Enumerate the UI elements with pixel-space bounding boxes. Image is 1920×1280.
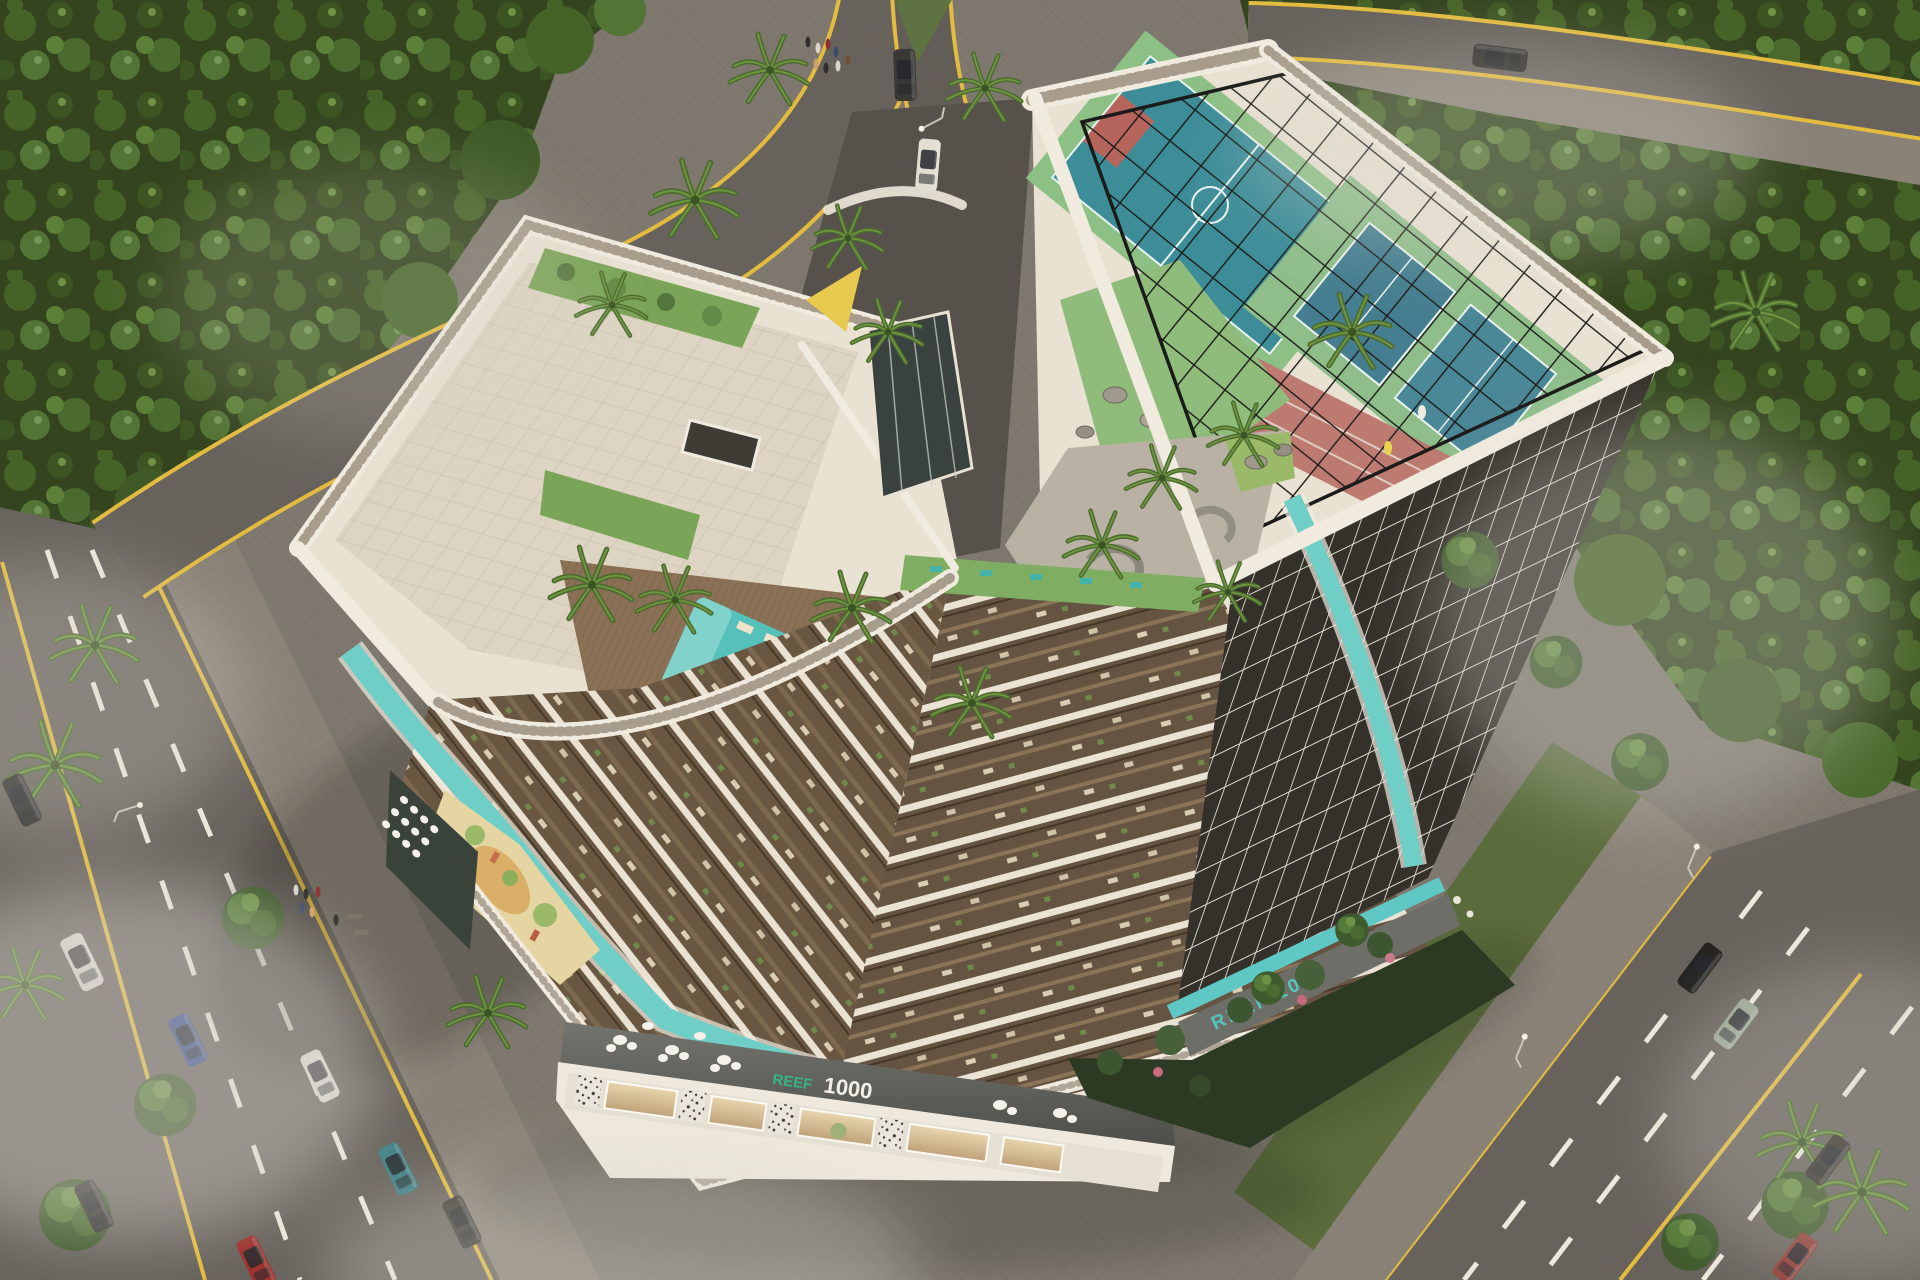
- terrazzo-pier: [877, 1118, 905, 1151]
- terrazzo-pier: [768, 1102, 796, 1135]
- aerial-render-scene: REEF 1000 REEF 1000: [0, 0, 1920, 1280]
- bench: [354, 930, 369, 935]
- white-flowers: [1453, 896, 1461, 904]
- car-white-suv: [915, 138, 941, 192]
- white-flowers: [1467, 911, 1474, 918]
- car-dark-sedan: [893, 49, 917, 102]
- bench: [348, 914, 363, 919]
- terrazzo-pier: [574, 1075, 602, 1108]
- pink-flowers: [1153, 1067, 1163, 1077]
- pink-flowers: [1297, 995, 1307, 1005]
- tree: [1335, 913, 1369, 947]
- padel-player: [1384, 441, 1392, 455]
- tree: [1251, 971, 1285, 1005]
- terrazzo-pier: [678, 1090, 706, 1123]
- padel-player: [1418, 405, 1426, 419]
- pink-flowers: [1385, 953, 1395, 963]
